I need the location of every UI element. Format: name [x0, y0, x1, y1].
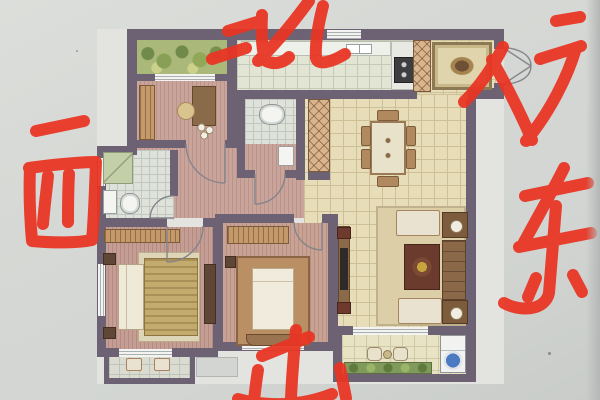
paper-speck	[548, 352, 551, 355]
paper-edge-shadow	[586, 0, 600, 400]
annotation-north	[212, 1, 345, 63]
annotation-entry	[464, 17, 581, 141]
direction-annotations	[0, 0, 600, 400]
paper-speck	[76, 50, 78, 52]
annotation-east	[504, 168, 591, 309]
annotation-south	[238, 330, 346, 400]
annotation-west	[29, 121, 96, 242]
floorplan-photo	[0, 0, 600, 400]
